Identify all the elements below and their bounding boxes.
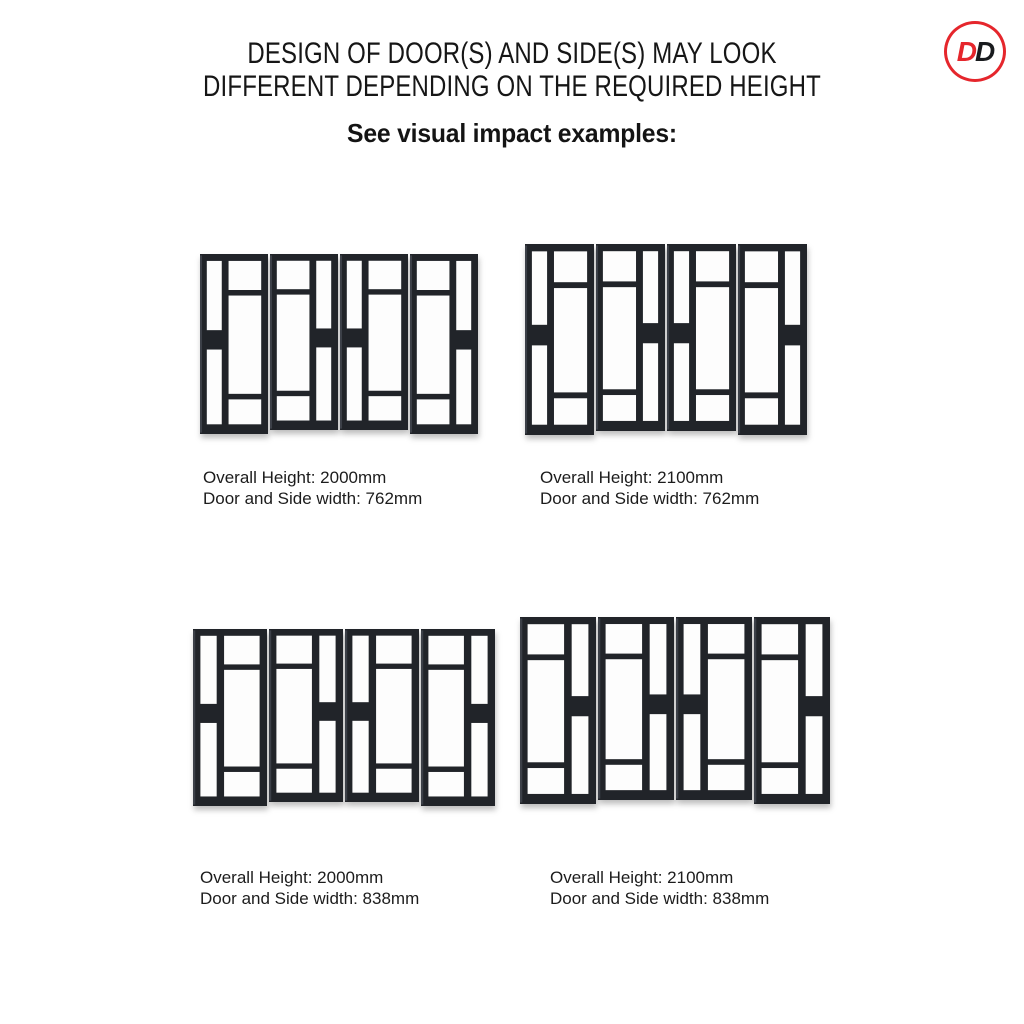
- caption-width-line: Door and Side width: 838mm: [550, 889, 769, 910]
- page-title-line-1: DESIGN OF DOOR(S) AND SIDE(S) MAY LOOK: [102, 37, 921, 70]
- door-panel-side: [738, 244, 807, 435]
- caption-2100x838: Overall Height: 2100mm Door and Side wid…: [550, 868, 769, 909]
- door-panel-door: [270, 254, 338, 430]
- door-panel-door: [596, 244, 665, 431]
- door-panel-door: [340, 254, 408, 430]
- caption-width-line: Door and Side width: 762mm: [540, 489, 759, 510]
- caption-height-line: Overall Height: 2000mm: [200, 868, 419, 889]
- header: DESIGN OF DOOR(S) AND SIDE(S) MAY LOOK D…: [0, 37, 1024, 149]
- caption-height-line: Overall Height: 2100mm: [550, 868, 769, 889]
- logo-letter-d-red: D: [957, 38, 975, 66]
- caption-2000x762: Overall Height: 2000mm Door and Side wid…: [203, 468, 422, 509]
- door-panel-door: [345, 629, 419, 802]
- caption-width-line: Door and Side width: 838mm: [200, 889, 419, 910]
- door-panel-side: [410, 254, 478, 434]
- caption-2000x838: Overall Height: 2000mm Door and Side wid…: [200, 868, 419, 909]
- door-illustration-2000x838: [193, 629, 495, 806]
- door-panel-side: [520, 617, 596, 804]
- caption-height-line: Overall Height: 2100mm: [540, 468, 759, 489]
- page-title-line-2: DIFFERENT DEPENDING ON THE REQUIRED HEIG…: [102, 70, 921, 103]
- door-panel-door: [598, 617, 674, 800]
- door-panel-side: [200, 254, 268, 434]
- door-panel-side: [754, 617, 830, 804]
- door-panel-side: [421, 629, 495, 806]
- subtitle: See visual impact examples:: [26, 118, 999, 149]
- door-illustration-2000x762: [200, 254, 478, 434]
- door-illustration-2100x838: [520, 617, 830, 804]
- door-panel-door: [676, 617, 752, 800]
- brand-logo: D D: [944, 21, 1006, 82]
- caption-height-line: Overall Height: 2000mm: [203, 468, 422, 489]
- door-panel-door: [667, 244, 736, 431]
- door-panel-side: [525, 244, 594, 435]
- caption-width-line: Door and Side width: 762mm: [203, 489, 422, 510]
- door-panel-side: [193, 629, 267, 806]
- door-panel-door: [269, 629, 343, 802]
- logo-letter-d-black: D: [975, 38, 993, 66]
- door-illustration-2100x762: [525, 244, 807, 435]
- page: DESIGN OF DOOR(S) AND SIDE(S) MAY LOOK D…: [0, 0, 1024, 1024]
- caption-2100x762: Overall Height: 2100mm Door and Side wid…: [540, 468, 759, 509]
